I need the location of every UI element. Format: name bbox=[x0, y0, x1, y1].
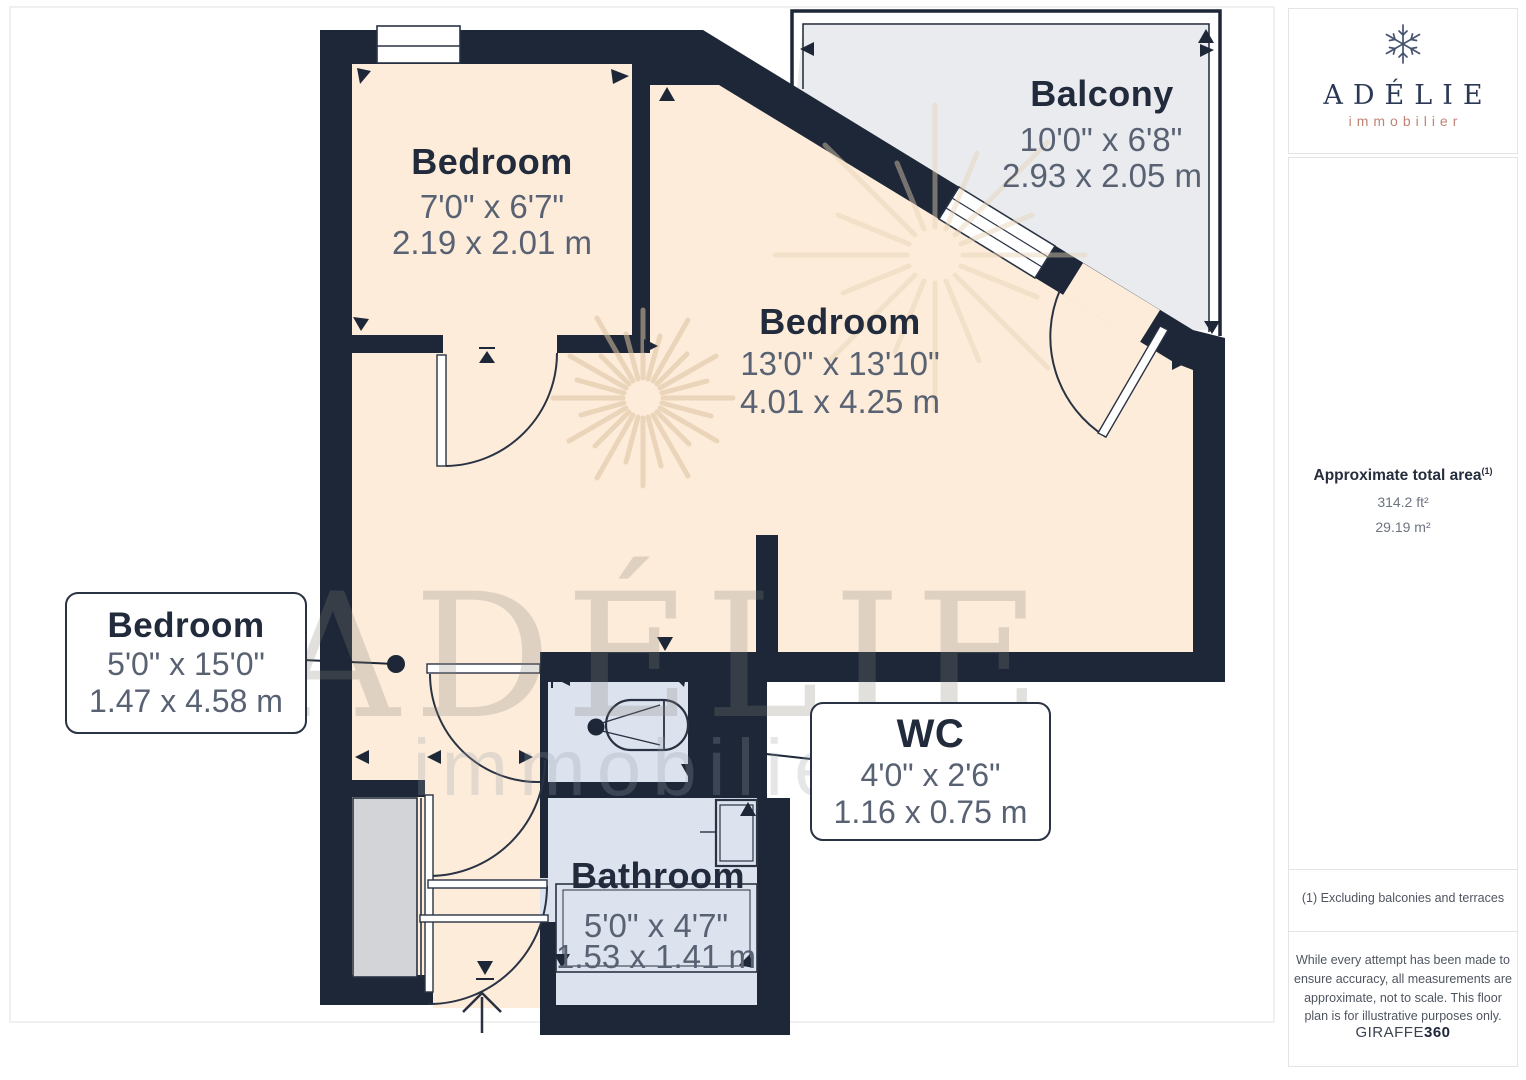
wardrobe-icon bbox=[353, 798, 421, 977]
callout-wc-name: WC bbox=[897, 712, 965, 757]
disclaimer-text: While every attempt has been made to ens… bbox=[1293, 951, 1513, 1026]
total-area-title-text: Approximate total area bbox=[1314, 467, 1482, 484]
callout-bedroom-name: Bedroom bbox=[107, 606, 264, 646]
area-footnote: (1) Excluding balconies and terraces bbox=[1289, 891, 1517, 905]
callout-bedroom-imperial: 5'0" x 15'0" bbox=[107, 646, 265, 683]
room-label-bathroom: Bathroom bbox=[571, 855, 745, 897]
total-area-imperial: 314.2 ft² bbox=[1289, 494, 1517, 510]
room-dim-bedroom-main-imperial: 13'0" x 13'10" bbox=[740, 345, 939, 383]
floor-plan-area: ADÉLIE immobilier Bedroom 7'0" x 6'7" 2.… bbox=[0, 0, 1286, 1080]
room-dim-balcony-imperial: 10'0" x 6'8" bbox=[1020, 121, 1183, 159]
callout-bedroom: Bedroom 5'0" x 15'0" 1.47 x 4.58 m bbox=[65, 592, 307, 734]
total-area-block: Approximate total area(1) 314.2 ft² 29.1… bbox=[1289, 466, 1517, 535]
total-area-footnote-marker: (1) bbox=[1481, 466, 1492, 476]
callout-wc-metric: 1.16 x 0.75 m bbox=[834, 794, 1028, 831]
window-top bbox=[377, 26, 460, 63]
divider bbox=[1289, 931, 1517, 932]
room-dim-bathroom-metric: 1.53 x 1.41 m bbox=[556, 938, 756, 976]
sidebar-info-card: Approximate total area(1) 314.2 ft² 29.1… bbox=[1288, 157, 1518, 1067]
brand-subtitle: immobilier bbox=[1289, 113, 1517, 129]
hall-wall-segment bbox=[320, 780, 425, 797]
giraffe360-credit: GIRAFFE360 bbox=[1289, 1024, 1517, 1041]
room-label-bedroom-small: Bedroom bbox=[411, 141, 573, 183]
callout-wc-imperial: 4'0" x 2'6" bbox=[861, 757, 1001, 794]
divider bbox=[1289, 869, 1517, 870]
room-label-balcony: Balcony bbox=[1030, 73, 1174, 115]
callout-wc: WC 4'0" x 2'6" 1.16 x 0.75 m bbox=[810, 702, 1051, 841]
total-area-title: Approximate total area(1) bbox=[1289, 466, 1517, 485]
sidebar-logo-card: ADÉLIE immobilier bbox=[1288, 8, 1518, 154]
total-area-metric: 29.19 m² bbox=[1289, 519, 1517, 535]
room-dim-balcony-metric: 2.93 x 2.05 m bbox=[1002, 157, 1202, 195]
brand-name: ADÉLIE bbox=[1289, 80, 1517, 111]
room-label-bedroom-main: Bedroom bbox=[759, 301, 921, 343]
callout-bedroom-metric: 1.47 x 4.58 m bbox=[89, 683, 283, 720]
room-dim-bedroom-main-metric: 4.01 x 4.25 m bbox=[740, 383, 940, 421]
snowflake-icon bbox=[1379, 21, 1427, 67]
giraffe360-suffix: 360 bbox=[1424, 1024, 1451, 1041]
giraffe360-brand: GIRAFFE bbox=[1355, 1024, 1424, 1041]
doorway-bedroom-small bbox=[443, 335, 557, 353]
floorplan-page: { "plan": { "rooms": { "bedroom_small": … bbox=[0, 0, 1526, 1080]
room-dim-bedroom-small-imperial: 7'0" x 6'7" bbox=[420, 188, 564, 226]
room-dim-bedroom-small-metric: 2.19 x 2.01 m bbox=[392, 224, 592, 262]
